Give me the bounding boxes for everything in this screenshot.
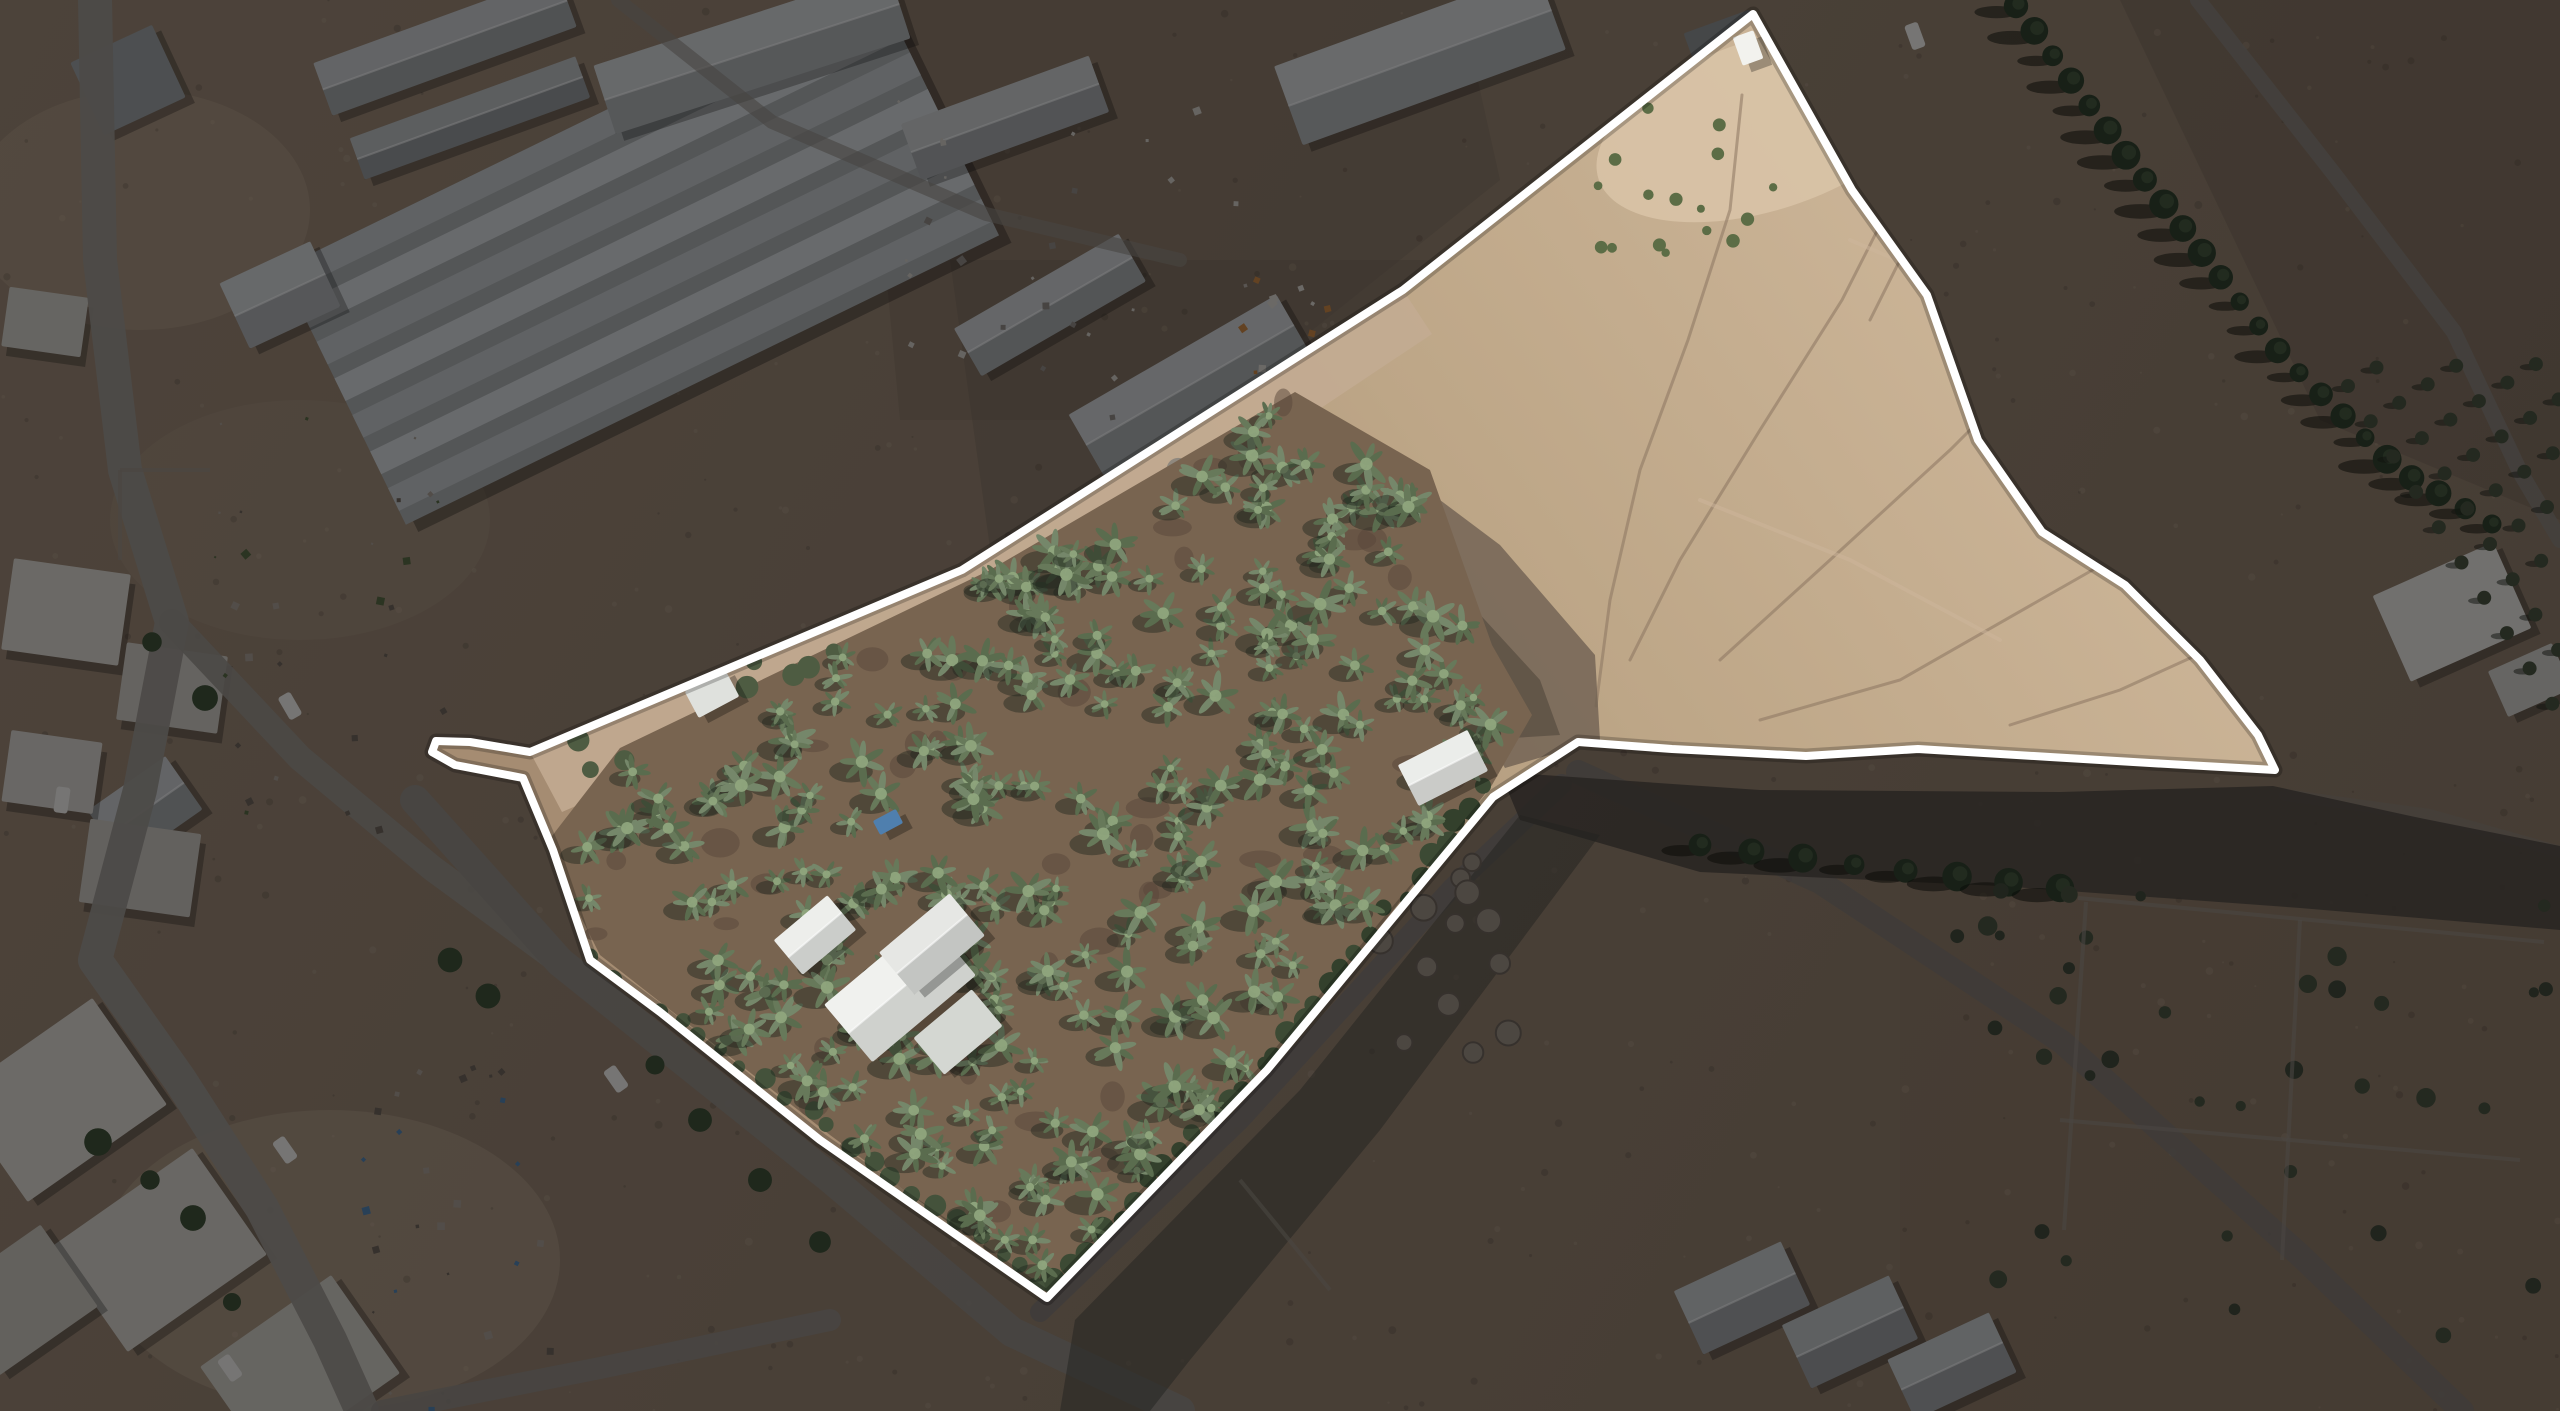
scene-svg <box>0 0 2560 1411</box>
aerial-screenshot <box>0 0 2560 1411</box>
